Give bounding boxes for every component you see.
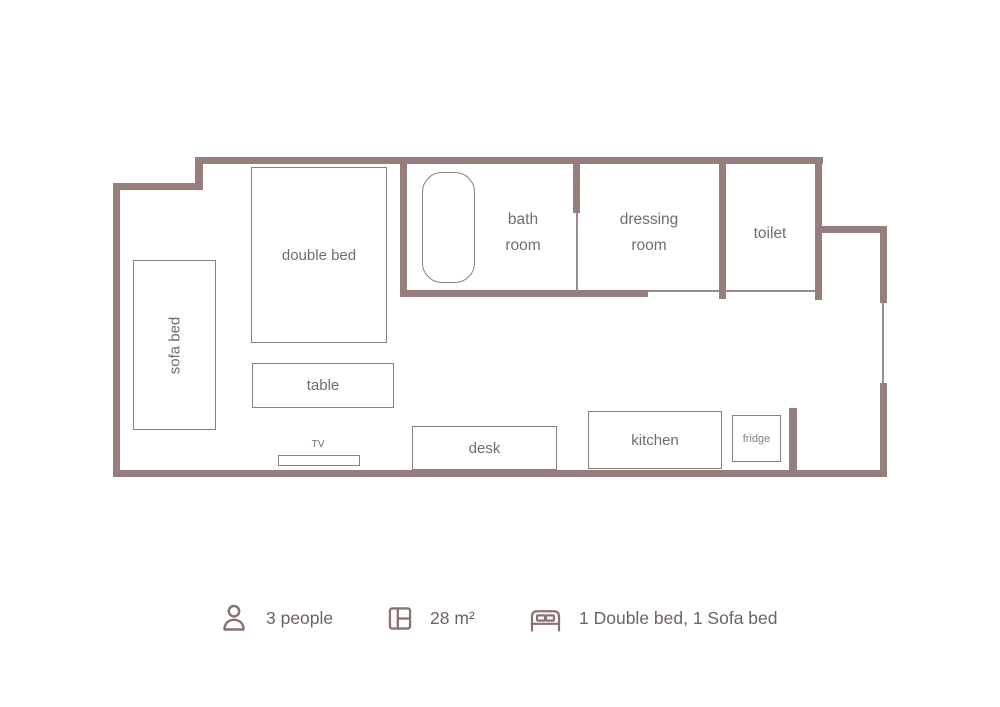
furniture-table: table (252, 363, 394, 408)
wall-bathroom-left (400, 157, 407, 297)
legend-area-label: 28 m² (430, 608, 475, 629)
furniture-kitchen: kitchen (588, 411, 722, 469)
desk-label: desk (469, 440, 501, 457)
legend-beds: 1 Double bed, 1 Sofa bed (528, 594, 778, 642)
furniture-tv (278, 455, 360, 466)
line-dressing-toilet-bottom (648, 290, 815, 292)
bathroom-label: bath room (463, 207, 583, 259)
floorplan-icon (386, 604, 414, 633)
bathroom-label-line1: bath (508, 211, 538, 228)
dressing-room-label-line1: dressing (620, 211, 679, 228)
legend-capacity-label: 3 people (266, 608, 333, 629)
bed-icon (528, 605, 563, 632)
wall-bathroom-bottom (400, 290, 648, 297)
wall-kitchen-stub (789, 408, 797, 470)
person-icon (218, 602, 250, 635)
furniture-desk: desk (412, 426, 557, 470)
furniture-sofa-bed: sofa bed (133, 260, 216, 430)
legend: 3 people 28 m² 1 Double bed, 1 Sofa bed (0, 594, 1000, 642)
wall-bath-dressing-stub (573, 157, 580, 213)
wall-right-lower (880, 383, 887, 477)
wall-right-upper (880, 226, 887, 303)
bathroom-label-line2: room (505, 237, 540, 254)
furniture-double-bed: double bed (251, 167, 387, 343)
furniture-fridge: fridge (732, 415, 781, 462)
window-line (882, 303, 884, 383)
sofa-bed-label: sofa bed (166, 316, 183, 374)
wall-bottom (113, 470, 887, 477)
tv-label: TV (288, 439, 348, 450)
legend-beds-label: 1 Double bed, 1 Sofa bed (579, 608, 778, 629)
wall-notch-horizontal (113, 183, 203, 190)
wall-left (113, 183, 120, 477)
dressing-room-label: dressing room (589, 207, 709, 259)
wall-top (195, 157, 823, 164)
dressing-room-label-line2: room (631, 237, 666, 254)
double-bed-label: double bed (282, 247, 356, 264)
legend-area: 28 m² (386, 594, 475, 642)
table-label: table (307, 377, 340, 394)
fridge-label: fridge (743, 433, 771, 445)
legend-capacity: 3 people (218, 594, 333, 642)
toilet-label: toilet (710, 221, 830, 247)
kitchen-label: kitchen (631, 432, 679, 449)
